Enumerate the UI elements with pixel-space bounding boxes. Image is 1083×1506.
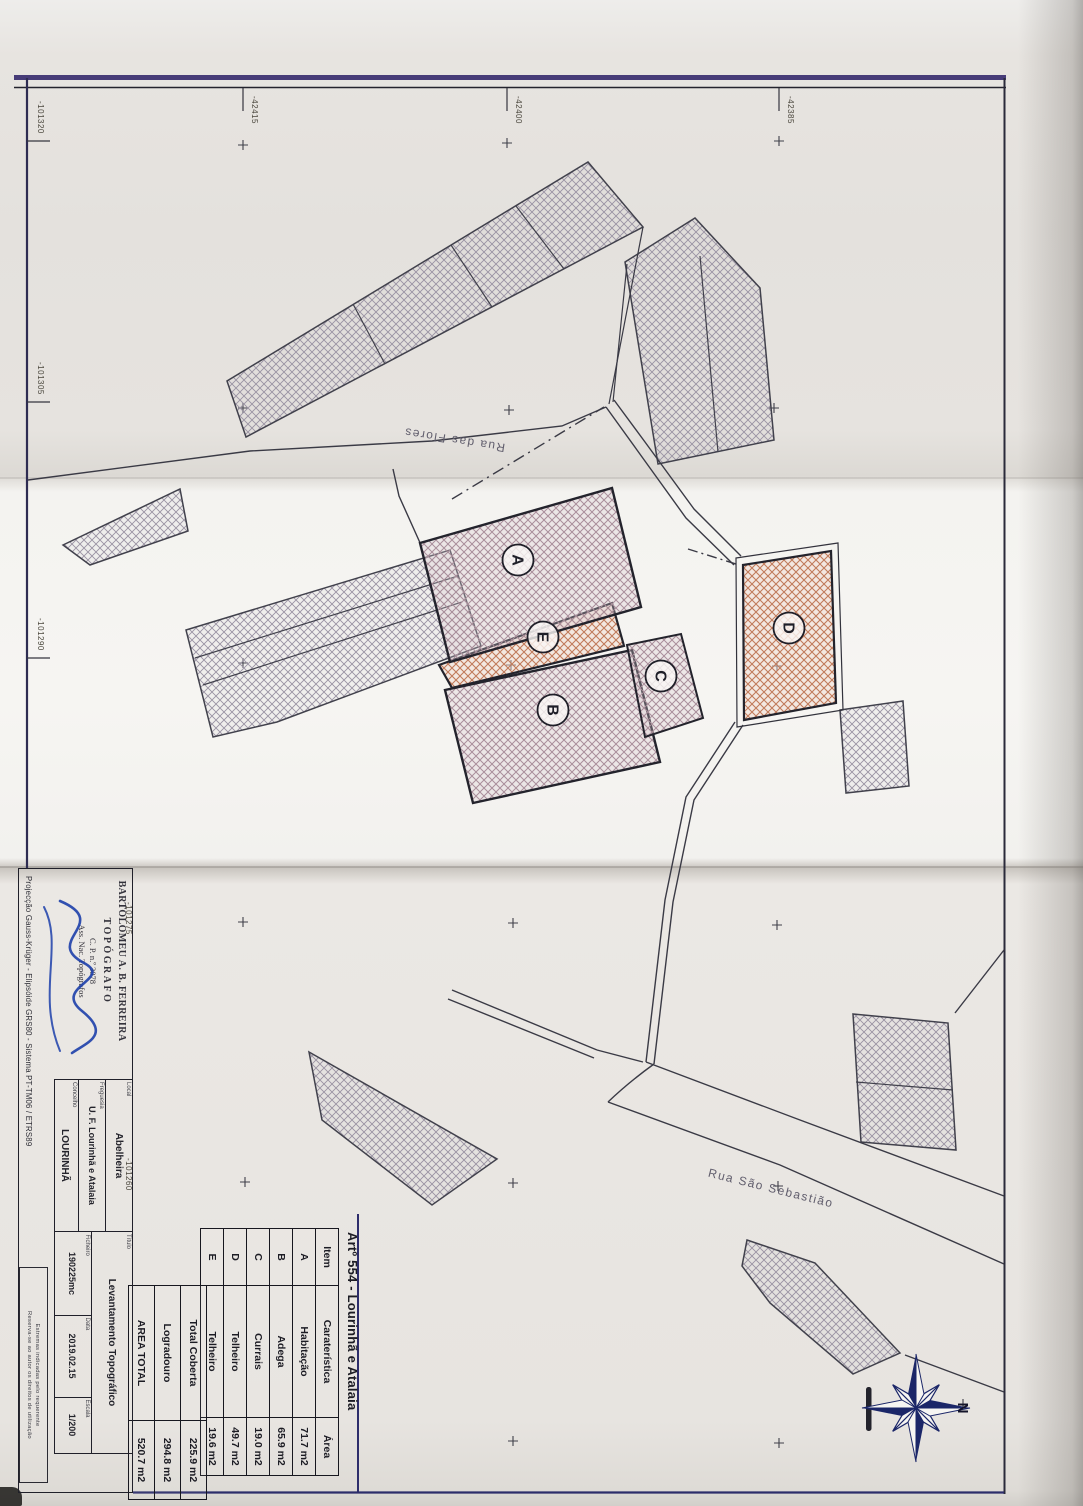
building-label-e: E	[528, 622, 559, 653]
field-escala: Escala 1/200	[54, 1397, 91, 1453]
field-label: Freguesia	[98, 1082, 104, 1109]
street-name-rua-das-flores: Rua das Flores	[403, 425, 506, 455]
building-letter: D	[780, 622, 797, 634]
cell-area: 19.0 m2	[247, 1417, 269, 1475]
building-label-c: C	[646, 661, 677, 692]
field-titulo: Título Levantamento Topográfico	[92, 1232, 132, 1453]
cell-area: 65.9 m2	[270, 1417, 292, 1475]
surveyor-stamp: BARTOLOMEU A. B. FERREIRA TOPÓGRAFO C. P…	[77, 875, 127, 1047]
field-concelho: Concelho LOURINHÃ	[52, 1080, 79, 1231]
document-fields-box: Título Levantamento Topográfico Ficheiro…	[54, 1231, 133, 1454]
total-label: Logradouro	[155, 1286, 180, 1420]
cell-feature: Adega	[270, 1285, 292, 1417]
cell-item: E	[201, 1229, 223, 1285]
table-row: Logradouro 294.8 m2	[155, 1286, 181, 1499]
scanned-survey-page: -42415 -42400 -42385 -101320 -101305 -10…	[0, 0, 1083, 1506]
location-fields-box: Local Abelheira Freguesia U. F. Lourinhã…	[54, 1079, 133, 1232]
notes-box: Estremas indicadas pelo requerente Reser…	[19, 1267, 48, 1483]
building-letter: E	[534, 632, 551, 643]
building-label-a: A	[503, 545, 534, 576]
table-row: C Currais 19.0 m2	[247, 1229, 270, 1475]
compass-cardinal-points	[862, 1354, 970, 1462]
field-value: Abelheira	[114, 1133, 125, 1179]
plan-title: Artº 554 - Lourinhã e Atalaia	[345, 1232, 360, 1410]
field-label: Data	[84, 1318, 90, 1331]
header-item: Item	[316, 1229, 338, 1285]
cell-item: D	[224, 1229, 246, 1285]
table-header-row: Item Caraterística Área	[316, 1229, 338, 1475]
field-value: Levantamento Topográfico	[107, 1279, 118, 1407]
field-value: 2019.02.15	[68, 1333, 78, 1378]
projection-note: Projecção Gauss-Krüger - Elipsóide GRS80…	[24, 876, 33, 1256]
surveyor-license: C. P. n.º 3078	[87, 875, 98, 1047]
compass-rose: N	[862, 1354, 971, 1462]
building-label-d: D	[774, 613, 805, 644]
field-value: 1/200	[68, 1414, 78, 1437]
table-row: B Adega 65.9 m2	[270, 1229, 293, 1475]
field-value: 190225mc	[68, 1252, 78, 1295]
subject-buildings-hatched	[420, 488, 843, 803]
grid-label: -42385	[786, 96, 795, 124]
table-row: Total Coberta 225.9 m2	[181, 1286, 206, 1499]
area-table: Item Caraterística Área A Habitação 71.7…	[200, 1228, 339, 1476]
total-area: 294.8 m2	[155, 1420, 180, 1499]
grid-label: -101305	[36, 362, 45, 395]
cell-area: 71.7 m2	[293, 1417, 315, 1475]
surveyor-association: Ass. Nac. Topógrafos	[77, 875, 88, 1047]
field-label: Título	[125, 1234, 131, 1249]
total-area: 225.9 m2	[181, 1420, 206, 1499]
cell-item: C	[247, 1229, 269, 1285]
field-freguesia: Freguesia U. F. Lourinhã e Atalaia	[79, 1080, 106, 1231]
building-letter: B	[544, 704, 561, 716]
cell-item: A	[293, 1229, 315, 1285]
grid-label: -42415	[250, 96, 259, 124]
surveyor-name: BARTOLOMEU A. B. FERREIRA	[115, 875, 128, 1047]
field-meta-row: Ficheiro 190225mc Data 2019.02.15 Escala…	[54, 1232, 92, 1453]
field-ficheiro: Ficheiro 190225mc	[54, 1233, 91, 1315]
totals-table: Total Coberta 225.9 m2 Logradouro 294.8 …	[128, 1285, 207, 1500]
note-line: Estremas indicadas pelo requerente	[35, 1323, 41, 1426]
field-label: Concelho	[71, 1082, 77, 1107]
building-letter: A	[509, 554, 526, 566]
field-label: Local	[125, 1082, 131, 1096]
surveyor-title: TOPÓGRAFO	[100, 875, 113, 1047]
table-row: D Telheiro 49.7 m2	[224, 1229, 247, 1475]
title-block: BARTOLOMEU A. B. FERREIRA TOPÓGRAFO C. P…	[18, 868, 133, 1493]
note-line: Reserva-se ao autor os direitos de utili…	[27, 1311, 33, 1439]
cell-feature: Telheiro	[224, 1285, 246, 1417]
header-feature: Caraterística	[316, 1285, 338, 1417]
table-row: A Habitação 71.7 m2	[293, 1229, 316, 1475]
building-label-b: B	[538, 695, 569, 726]
cell-area: 49.7 m2	[224, 1417, 246, 1475]
cell-feature: Habitação	[293, 1285, 315, 1417]
field-value: U. F. Lourinhã e Atalaia	[87, 1106, 97, 1205]
street-name-rua-sao-sebastiao: Rua São Sebastião	[707, 1166, 835, 1211]
road-and-boundary-lines	[28, 227, 1004, 1392]
field-label: Ficheiro	[84, 1235, 90, 1256]
building-letter: C	[652, 670, 669, 682]
field-local: Local Abelheira	[106, 1080, 132, 1231]
cell-item: B	[270, 1229, 292, 1285]
field-data: Data 2019.02.15	[54, 1315, 91, 1397]
north-label: N	[954, 1403, 971, 1414]
area-table-block: Artº 554 - Lourinhã e Atalaia Item Carat…	[130, 1228, 360, 1502]
grid-label: -101320	[36, 101, 45, 134]
field-label: Escala	[84, 1400, 90, 1418]
grid-label: -42400	[514, 96, 523, 124]
header-area: Área	[316, 1417, 338, 1475]
field-value: LOURINHÃ	[60, 1129, 71, 1182]
grid-label: -101290	[36, 618, 45, 651]
total-label: Total Coberta	[181, 1286, 206, 1420]
cell-feature: Currais	[247, 1285, 269, 1417]
